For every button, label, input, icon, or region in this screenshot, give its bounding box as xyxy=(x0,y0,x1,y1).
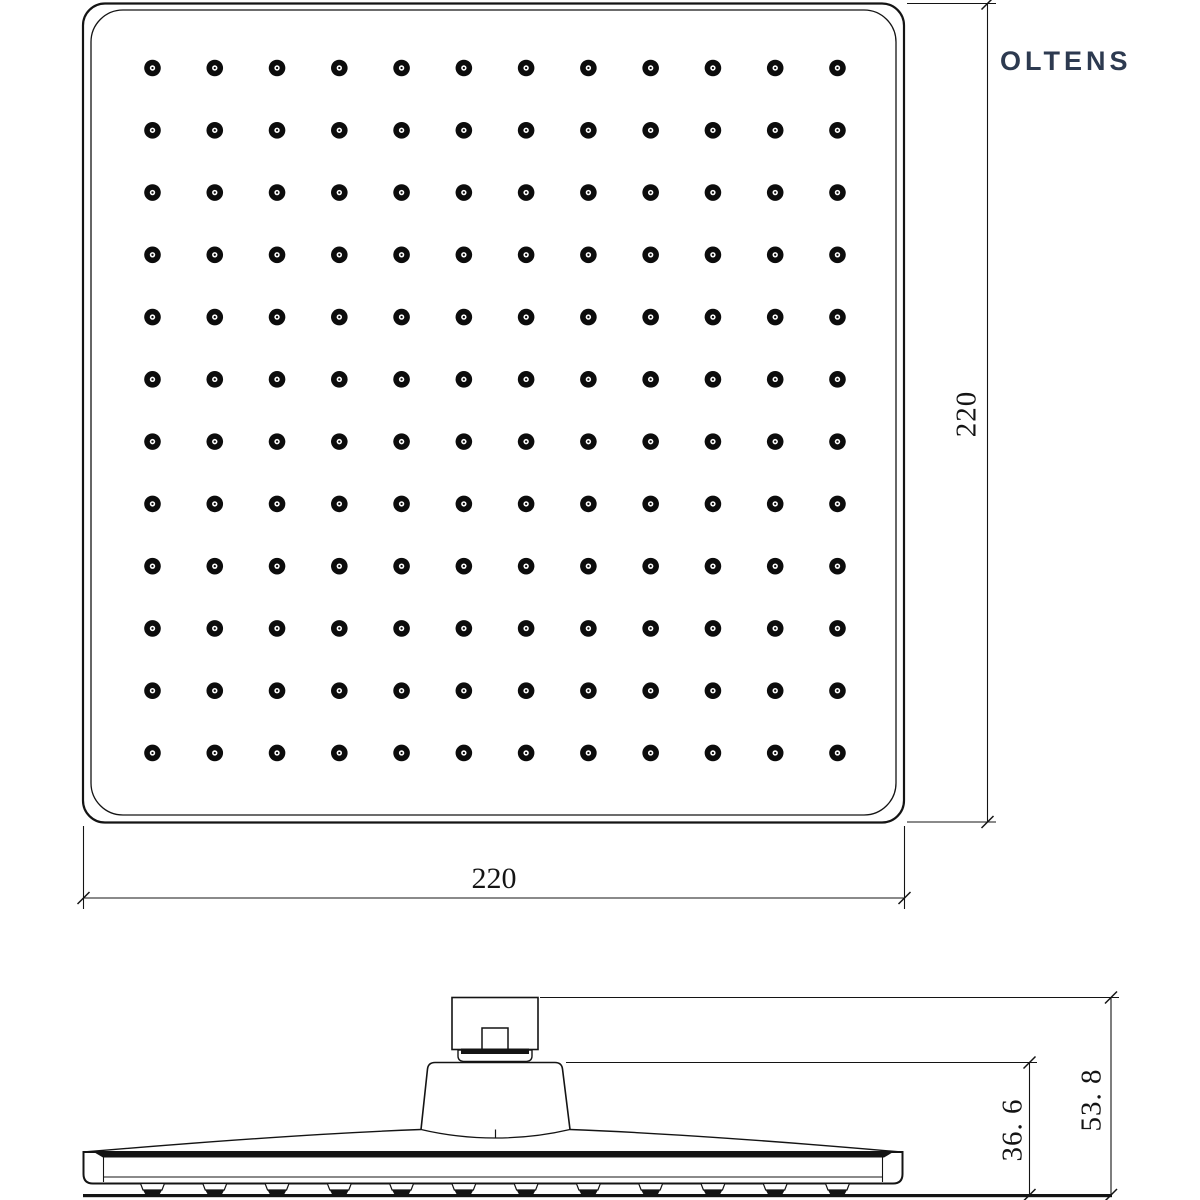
side-nozzle-flange xyxy=(265,1184,289,1191)
nozzle-dot xyxy=(587,67,589,69)
nozzle-dot xyxy=(525,503,527,505)
nozzle-dot xyxy=(712,254,714,256)
nozzle-dot xyxy=(400,503,402,505)
side-nozzle-flange xyxy=(327,1184,351,1191)
nozzle-dot xyxy=(525,690,527,692)
nozzle-dot xyxy=(650,129,652,131)
neck-cone xyxy=(421,1063,570,1130)
nozzle-dot xyxy=(463,627,465,629)
nozzle-dot xyxy=(276,378,278,380)
nozzle-dot xyxy=(400,440,402,442)
side-nozzle-flange xyxy=(390,1184,414,1191)
nozzle-dot xyxy=(338,191,340,193)
nozzle-dot xyxy=(400,254,402,256)
nozzle-dot xyxy=(463,690,465,692)
nozzle-dot xyxy=(400,378,402,380)
nozzle-dot xyxy=(214,67,216,69)
nozzle-dot xyxy=(400,627,402,629)
nozzle-dot xyxy=(151,440,153,442)
nozzle-dot xyxy=(774,316,776,318)
nozzle-dot xyxy=(836,690,838,692)
plate-top-slope-right xyxy=(570,1130,901,1153)
nozzle-dot xyxy=(712,67,714,69)
dim-label-height-220: 220 xyxy=(951,391,984,438)
nozzle-dot xyxy=(214,378,216,380)
nozzle-dot xyxy=(774,254,776,256)
nozzle-dot xyxy=(650,503,652,505)
nozzle-dot xyxy=(712,752,714,754)
nozzle-dot xyxy=(151,378,153,380)
nozzle-dot xyxy=(712,316,714,318)
nozzle-dot xyxy=(650,378,652,380)
nozzle-dot xyxy=(587,627,589,629)
nozzle-dot xyxy=(338,627,340,629)
drawing-canvas xyxy=(0,0,1200,1200)
nozzle-dot xyxy=(774,503,776,505)
nozzle-dot xyxy=(151,254,153,256)
nozzle-dot xyxy=(151,316,153,318)
nozzle-dot xyxy=(463,67,465,69)
nozzle-dot xyxy=(774,191,776,193)
nozzle-dot xyxy=(338,752,340,754)
nozzle-dot xyxy=(400,752,402,754)
nozzle-dot xyxy=(276,191,278,193)
nozzle-dot xyxy=(276,627,278,629)
side-nozzle-flange xyxy=(701,1184,725,1191)
nozzle-dot xyxy=(214,690,216,692)
side-nozzle-flange xyxy=(203,1184,227,1191)
side-nozzle-flange xyxy=(141,1184,165,1191)
nozzle-dot xyxy=(650,440,652,442)
side-nozzle-flange xyxy=(639,1184,663,1191)
nozzle-dot xyxy=(338,129,340,131)
side-view xyxy=(83,998,1112,1198)
nozzle-dot xyxy=(463,503,465,505)
nozzle-dot xyxy=(587,690,589,692)
nozzle-dot xyxy=(525,129,527,131)
nozzle-dot xyxy=(587,503,589,505)
nozzle-dot xyxy=(276,316,278,318)
nozzle-dot xyxy=(276,67,278,69)
side-nozzle-flange xyxy=(576,1184,600,1191)
nozzle-dot xyxy=(587,378,589,380)
nozzle-dot xyxy=(525,627,527,629)
nozzle-dot xyxy=(650,565,652,567)
nozzle-dot xyxy=(338,316,340,318)
nozzle-dot xyxy=(214,503,216,505)
nozzle-dot xyxy=(463,752,465,754)
nozzle-dot xyxy=(836,503,838,505)
nozzle-dot xyxy=(214,752,216,754)
dim-label-overall-height-53-8: 53. 8 xyxy=(1076,1069,1109,1132)
nozzle-dot xyxy=(525,316,527,318)
nozzle-dot xyxy=(712,378,714,380)
nozzle-dot xyxy=(587,254,589,256)
nozzle-dot xyxy=(650,690,652,692)
nozzle-dot xyxy=(276,440,278,442)
side-nozzle-flange xyxy=(763,1184,787,1191)
nozzle-dot xyxy=(151,67,153,69)
nozzle-dot xyxy=(276,565,278,567)
nozzle-dot xyxy=(525,254,527,256)
nozzle-dot xyxy=(463,254,465,256)
nozzle-dot xyxy=(774,627,776,629)
side-nozzle-flange xyxy=(825,1184,849,1191)
nozzle-dot xyxy=(276,254,278,256)
nozzle-dot xyxy=(525,565,527,567)
nozzle-dot xyxy=(338,378,340,380)
nozzle-dot xyxy=(836,67,838,69)
nozzle-dot xyxy=(525,752,527,754)
plate-shadow-band xyxy=(92,1151,895,1158)
nozzle-dot xyxy=(774,67,776,69)
nozzle-dot xyxy=(400,565,402,567)
nozzle-dot xyxy=(214,440,216,442)
nozzle-dot xyxy=(712,565,714,567)
nozzle-dot xyxy=(836,565,838,567)
nozzle-dot xyxy=(836,378,838,380)
nozzle-dot xyxy=(338,67,340,69)
nozzle-dot xyxy=(338,503,340,505)
nozzle-dot xyxy=(400,690,402,692)
nozzle-dot xyxy=(276,752,278,754)
nozzle-dot xyxy=(151,503,153,505)
nozzle-dot xyxy=(836,440,838,442)
supply-pipe xyxy=(452,998,538,1050)
nozzle-dot xyxy=(650,627,652,629)
nozzle-dot xyxy=(836,191,838,193)
nozzle-dot xyxy=(712,503,714,505)
nozzle-dot xyxy=(400,129,402,131)
threaded-connector xyxy=(482,1028,508,1050)
nozzle-dot xyxy=(650,752,652,754)
nozzle-dot xyxy=(338,565,340,567)
nozzle-dot xyxy=(712,440,714,442)
nozzle-dot xyxy=(650,67,652,69)
nozzle-dot xyxy=(214,129,216,131)
nozzle-dot xyxy=(650,316,652,318)
nozzle-dot xyxy=(151,752,153,754)
nozzle-dot xyxy=(774,129,776,131)
plate-top-slope-left xyxy=(84,1130,421,1153)
nozzle-grid xyxy=(144,60,846,762)
nozzle-dot xyxy=(650,254,652,256)
nozzle-dot xyxy=(151,129,153,131)
nozzle-dot xyxy=(525,378,527,380)
nozzle-dot xyxy=(836,129,838,131)
nozzle-dot xyxy=(400,67,402,69)
nozzle-dot xyxy=(214,316,216,318)
nozzle-dot xyxy=(400,191,402,193)
nozzle-dot xyxy=(463,191,465,193)
nozzle-dot xyxy=(151,191,153,193)
nozzle-dot xyxy=(463,440,465,442)
nozzle-dot xyxy=(338,440,340,442)
nozzle-dot xyxy=(587,752,589,754)
nozzle-dot xyxy=(525,67,527,69)
nozzle-dot xyxy=(276,690,278,692)
nozzle-dot xyxy=(587,191,589,193)
baseline xyxy=(83,1194,1112,1197)
nozzle-dot xyxy=(836,752,838,754)
shower-head-technical-drawing: OLTENS 220 220 36. 6 53. 8 xyxy=(0,0,1200,1200)
nozzle-dot xyxy=(525,440,527,442)
nozzle-dot xyxy=(214,191,216,193)
top-view xyxy=(83,4,904,823)
nozzle-dot xyxy=(712,191,714,193)
nozzle-dot xyxy=(774,690,776,692)
nozzle-dot xyxy=(587,565,589,567)
nozzle-dot xyxy=(712,129,714,131)
nozzle-dot xyxy=(774,565,776,567)
side-nozzle-flange xyxy=(514,1184,538,1191)
brand-logo: OLTENS xyxy=(1000,46,1132,77)
nozzle-dot xyxy=(587,316,589,318)
nozzle-dot xyxy=(587,440,589,442)
nozzle-dot xyxy=(151,565,153,567)
nozzle-dot xyxy=(463,129,465,131)
nozzle-dot xyxy=(214,254,216,256)
nozzle-dot xyxy=(463,316,465,318)
nozzle-dot xyxy=(214,627,216,629)
nozzle-dot xyxy=(276,129,278,131)
nozzle-dot xyxy=(774,378,776,380)
nozzle-dot xyxy=(463,378,465,380)
nozzle-dot xyxy=(774,752,776,754)
nozzle-dot xyxy=(836,254,838,256)
nozzle-dot xyxy=(400,316,402,318)
dim-label-width-220: 220 xyxy=(472,862,517,896)
nozzle-dot xyxy=(338,690,340,692)
nozzle-dot xyxy=(276,503,278,505)
dim-label-head-height-36-6: 36. 6 xyxy=(997,1099,1030,1162)
nozzle-dot xyxy=(712,690,714,692)
nozzle-dot xyxy=(587,129,589,131)
nozzle-dot xyxy=(151,690,153,692)
nozzle-dot xyxy=(650,191,652,193)
side-nozzle-flange xyxy=(452,1184,476,1191)
nozzle-dot xyxy=(214,565,216,567)
nozzle-dot xyxy=(836,627,838,629)
nozzle-dot xyxy=(774,440,776,442)
nozzle-dot xyxy=(463,565,465,567)
nozzle-dot xyxy=(338,254,340,256)
nozzle-dot xyxy=(712,627,714,629)
nozzle-dot xyxy=(151,627,153,629)
nozzle-dot xyxy=(525,191,527,193)
nozzle-dot xyxy=(836,316,838,318)
